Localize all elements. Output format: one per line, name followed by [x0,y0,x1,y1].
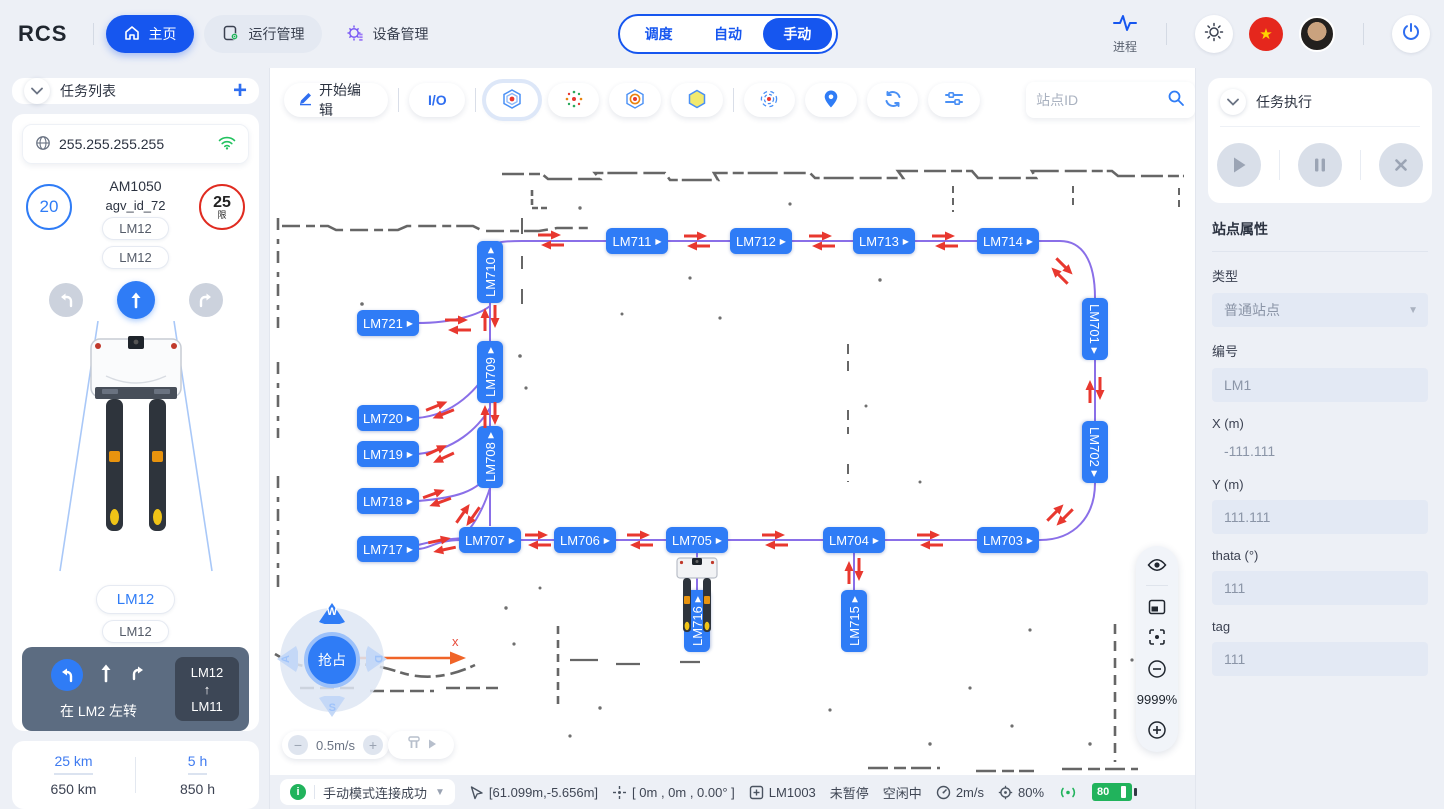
station-node[interactable]: LM710▶ [477,241,503,303]
right-sidebar: 任务执行 站点属性 类型 ▼ 编号 [1195,68,1444,809]
theta-label: thata (°) [1212,548,1428,563]
joystick-down[interactable]: S [317,696,347,718]
start-edit-button[interactable]: 开始编辑 [284,83,388,117]
station-node[interactable]: LM709▶ [477,341,503,403]
nav-home-label: 主页 [148,24,176,44]
mode-switcher: 调度 自动 手动 [618,14,838,54]
waveform-icon [1112,13,1138,36]
scatter-dots-icon [563,88,585,113]
network-icon [35,135,51,154]
speed-readout: 2m/s [936,785,984,800]
speed-plus-button[interactable]: + [363,735,383,755]
vehicle-ip-row[interactable]: 255.255.255.255 [22,124,249,164]
speed-minus-button[interactable]: − [288,735,308,755]
current-station: LM1003 [749,785,816,800]
joystick-right[interactable]: D [366,644,388,674]
process-button[interactable]: 进程 [1112,13,1138,55]
status-message[interactable]: i 手动模式连接成功 ▼ [280,779,455,805]
station-node[interactable]: LM721▶ [357,310,419,336]
layer-zones-button[interactable] [671,83,723,117]
station-node[interactable]: LM713▶ [853,228,915,254]
fork-control-button[interactable] [388,731,454,759]
minimap-button[interactable] [1148,599,1166,615]
joystick-up[interactable]: W [317,602,347,624]
fork-play-icon [428,736,437,754]
station-node[interactable]: LM712▶ [730,228,792,254]
search-icon[interactable] [1167,89,1185,112]
locate-button[interactable] [805,83,857,117]
nav-devices[interactable]: 设备管理 [328,15,446,53]
x-label: X (m) [1212,416,1428,431]
type-select-value[interactable] [1212,293,1428,327]
manual-joystick[interactable]: W A D S 抢占 [280,608,384,712]
left-sidebar: 任务列表 + 255.255.255.255 20 AM1050 agv_id_… [0,68,270,809]
station-node[interactable]: LM715▶ [841,590,867,652]
robot-pose: [ 0m , 0m , 0.00° ] [612,785,735,800]
nav-devices-label: 设备管理 [372,24,428,44]
turn-right-hint-icon[interactable] [129,665,147,686]
navigation-hint-panel: 在 LM2 左转 LM12 ↑ LM11 [22,647,249,731]
task-list-title: 任务列表 [60,81,233,101]
status-message-text: 手动模式连接成功 [323,783,427,802]
turn-left-active-icon[interactable] [51,659,83,691]
station-node[interactable]: LM707▶ [459,527,521,553]
speed-badge: 20 [26,184,72,230]
axis-x-label: x [452,634,459,649]
speed-limit-badge: 25 限 [199,184,245,230]
vehicle-id: agv_id_72 [106,198,166,213]
cursor-coords: [61.099m,-5.656m] [469,785,598,800]
task-execution-card: 任务执行 [1208,78,1432,203]
props-title: 站点属性 [1212,219,1428,252]
station-pill: LM12 [102,620,169,643]
station-pill: LM12 [102,246,169,269]
station-node[interactable]: LM703▶ [977,527,1039,553]
manual-speed-value: 0.5m/s [316,738,355,753]
divider [93,23,94,45]
station-node[interactable]: LM718▶ [357,488,419,514]
theme-toggle-button[interactable] [1195,15,1233,53]
y-input[interactable] [1212,500,1428,534]
map-area[interactable]: 开始编辑 I/O [270,68,1195,809]
station-node[interactable]: LM706▶ [554,527,616,553]
task-play-button[interactable] [1217,143,1261,187]
station-node[interactable]: LM720▶ [357,405,419,431]
monitor-gear-icon [222,24,240,45]
today-distance: 25 km [54,753,92,775]
type-label: 类型 [1212,266,1428,285]
y-label: Y (m) [1212,477,1428,492]
chevron-down-icon[interactable]: ▼ [435,787,445,798]
today-hours: 5 h [188,753,207,775]
station-node[interactable]: LM705▶ [666,527,728,553]
sliders-icon [944,90,964,111]
vehicle-ip: 255.255.255.255 [59,136,210,152]
zoom-out-button[interactable] [1147,659,1167,679]
zoom-level: 9999% [1137,692,1177,707]
total-hours: 850 h [180,781,215,797]
station-node[interactable]: LM701▶ [1082,298,1108,360]
vehicle-model: AM1050 [109,178,161,194]
layer-pointcloud-button[interactable] [548,83,600,117]
mode-manual[interactable]: 手动 [763,18,832,50]
task-exec-title: 任务执行 [1256,92,1420,112]
joystick-left[interactable]: A [276,644,298,674]
station-node[interactable]: LM717▶ [357,536,419,562]
tag-input[interactable] [1212,642,1428,676]
hexagon-node-icon [501,88,523,113]
yellow-hexagon-icon [686,88,708,113]
gear-icon [346,24,364,45]
tag-label: tag [1212,619,1428,634]
add-task-button[interactable]: + [233,79,247,103]
app-logo: RCS [18,21,67,47]
nav-operations-label: 运行管理 [248,24,304,44]
pause-state: 未暂停 [830,783,869,802]
chevron-down-icon[interactable] [1220,89,1246,115]
route-segment: LM12 ↑ LM11 [175,657,239,721]
theta-input[interactable] [1212,571,1428,605]
turn-instruction: 在 LM2 左转 [32,701,165,721]
task-pause-button[interactable] [1298,143,1342,187]
current-station-pill: LM12 [96,585,176,614]
forklift-illustration [22,321,249,579]
nav-home[interactable]: 主页 [106,15,194,53]
layer-rings-button[interactable] [609,83,661,117]
refresh-icon [883,89,903,112]
info-icon: i [290,784,306,800]
wifi-icon [218,136,236,153]
fork-icon [406,736,422,755]
chevron-down-icon[interactable] [24,78,50,104]
station-node[interactable]: LM716▶ [684,590,710,652]
turn-left-icon[interactable] [49,283,83,317]
station-node[interactable]: LM702▶ [1082,421,1108,483]
power-button[interactable] [1392,15,1430,53]
forward-icon[interactable] [117,281,155,319]
station-node[interactable]: LM714▶ [977,228,1039,254]
language-flag-button[interactable]: ★ [1249,17,1283,51]
station-node[interactable]: LM719▶ [357,441,419,467]
station-search [1026,82,1195,118]
station-node[interactable]: LM708▶ [477,426,503,488]
hexagon-target-icon [624,88,646,113]
task-cancel-button[interactable] [1379,143,1423,187]
code-label: 编号 [1212,341,1428,360]
vehicle-card: 255.255.255.255 20 AM1050 agv_id_72 LM12… [12,114,259,731]
chevron-down-icon: ▼ [1408,305,1418,316]
divider [1363,23,1364,45]
type-select[interactable]: ▼ [1212,293,1428,327]
station-properties-panel: 站点属性 类型 ▼ 编号 X (m) -111.111 Y (m) [1208,203,1432,676]
battery-indicator: 80 [1092,783,1132,801]
vehicle-stats-card: 25 km 650 km 5 h 850 h [12,741,259,809]
home-icon [124,25,140,44]
x-value: -111.111 [1212,439,1428,463]
lidar-button[interactable] [744,83,796,117]
manual-speed-control: − 0.5m/s + [282,731,389,759]
idle-state: 空闲中 [883,783,922,802]
visibility-button[interactable] [1147,558,1167,572]
pencil-icon [298,91,313,109]
radar-icon [758,88,780,113]
map-pin-icon [822,89,840,112]
power-icon [1401,22,1421,47]
nav-operations[interactable]: 运行管理 [204,15,322,53]
joystick-seize-button[interactable]: 抢占 [304,632,360,688]
total-distance: 650 km [51,781,97,797]
mode-dispatch[interactable]: 调度 [624,18,693,50]
map-toolbar: 开始编辑 I/O [284,82,1195,118]
layer-stations-button[interactable] [486,83,538,117]
process-label: 进程 [1113,38,1137,55]
turn-right-icon[interactable] [189,283,223,317]
view-palette: 9999% [1136,546,1178,752]
station-pill: LM12 [102,217,169,240]
signal-icon [1058,785,1078,800]
io-button[interactable]: I/O [409,83,465,117]
task-list-header: 任务列表 + [12,78,259,104]
user-avatar[interactable] [1299,16,1335,52]
mode-auto[interactable]: 自动 [693,18,762,50]
filter-button[interactable] [928,83,980,117]
localization-quality: 80% [998,785,1044,800]
station-search-input[interactable] [1036,92,1167,108]
refresh-button[interactable] [867,83,919,117]
station-node[interactable]: LM704▶ [823,527,885,553]
status-bar: i 手动模式连接成功 ▼ [61.099m,-5.656m] [ 0m , 0m… [270,775,1195,809]
sun-icon [1204,22,1224,47]
code-input[interactable] [1212,368,1428,402]
zoom-in-button[interactable] [1147,720,1167,740]
straight-icon[interactable] [99,663,113,688]
divider [1166,23,1167,45]
station-node[interactable]: LM711▶ [606,228,668,254]
header: RCS 主页 运行管理 设备管理 调度 自动 手动 进程 [0,0,1444,68]
center-focus-button[interactable] [1148,628,1166,646]
star-icon: ★ [1259,25,1272,43]
